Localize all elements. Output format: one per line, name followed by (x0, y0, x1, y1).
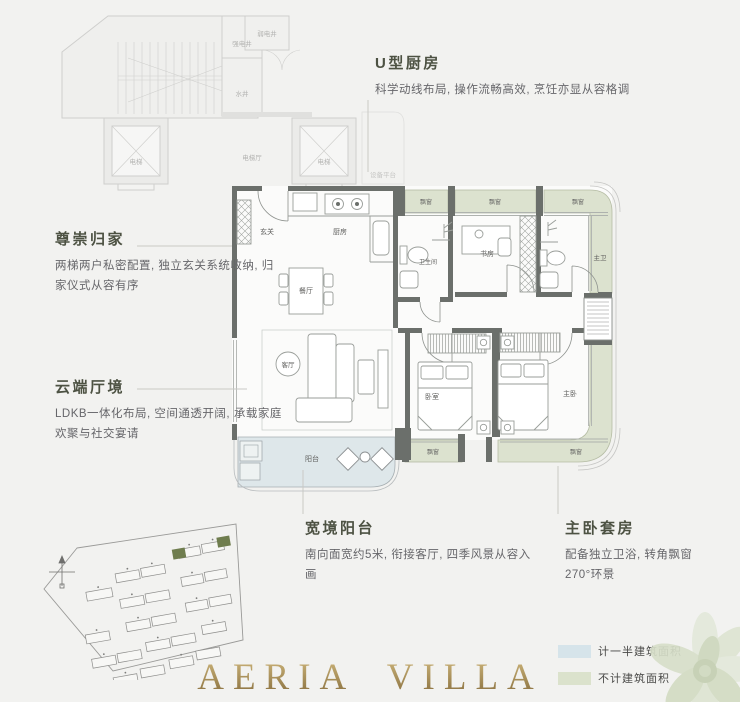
annotation-balcony: 宽境阳台 南向面宽约5米, 衔接客厅, 四季风景从容入画 (305, 517, 540, 585)
compass-icon (49, 556, 75, 588)
brand-title: AERIA VILLA (140, 656, 600, 699)
annotation-kitchen-desc: 科学动线布局, 操作流畅高效, 烹饪亦显从容格调 (375, 80, 643, 100)
annotation-master-title: 主卧套房 (565, 517, 735, 538)
annotation-master: 主卧套房 配备独立卫浴, 转角飘窗 270°环景 (565, 517, 735, 585)
annotation-balcony-title: 宽境阳台 (305, 517, 540, 538)
flower-decoration (625, 597, 740, 702)
bay-window-label: 飘窗 (572, 198, 584, 206)
elevator-right-label: 电梯 (318, 157, 332, 166)
bedroom-label: 卧室 (425, 392, 439, 401)
balcony-zone (234, 437, 399, 491)
shaft-strong-label: 强电井 (232, 39, 252, 48)
kitchen-label: 厨房 (333, 227, 347, 236)
bay-window-label: 飘窗 (489, 198, 501, 206)
study-label: 书房 (480, 249, 494, 258)
annotation-arrival-title: 尊崇归家 (55, 228, 283, 249)
annotation-living-desc: LDKB一体化布局, 空间通透开阔, 承载家庭欢聚与社交宴请 (55, 404, 283, 444)
annotation-arrival: 尊崇归家 两梯两户私密配置, 独立玄关系统收纳, 归家仪式从容有序 (55, 228, 283, 296)
annotation-kitchen-title: U型厨房 (375, 52, 643, 73)
annotation-living: 云端厅境 LDKB一体化布局, 空间通透开阔, 承载家庭欢聚与社交宴请 (55, 376, 283, 444)
balcony-label: 阳台 (305, 454, 319, 463)
annotation-kitchen: U型厨房 科学动线布局, 操作流畅高效, 烹饪亦显从容格调 (375, 52, 643, 100)
elevator-hall-label: 电梯厅 (242, 153, 262, 162)
annotation-master-desc2: 270°环景 (565, 565, 735, 585)
elevator-left-label: 电梯 (130, 157, 144, 166)
shaft-water-label: 水井 (236, 89, 250, 98)
annotation-master-desc: 配备独立卫浴, 转角飘窗 (565, 545, 735, 565)
annotation-living-title: 云端厅境 (55, 376, 283, 397)
annotation-arrival-desc: 两梯两户私密配置, 独立玄关系统收纳, 归家仪式从容有序 (55, 256, 283, 296)
shaft-weak-label: 弱电井 (257, 29, 277, 38)
bay-window-label: 飘窗 (420, 198, 432, 206)
bay-window-label: 飘窗 (570, 448, 582, 456)
master-bath-label: 主卫 (594, 253, 608, 262)
page: { "annotations": { "kitchen": {"title": … (0, 0, 740, 702)
bay-window-label: 飘窗 (427, 448, 439, 456)
bath-label: 卫生间 (419, 258, 437, 266)
living-label: 客厅 (282, 360, 296, 369)
equipment-label: 设备平台 (370, 170, 396, 179)
annotation-balcony-desc: 南向面宽约5米, 衔接客厅, 四季风景从容入画 (305, 545, 540, 585)
dining-label: 餐厅 (299, 286, 313, 295)
master-bedroom-label: 主卧 (563, 389, 577, 398)
ac-platform (584, 298, 612, 340)
